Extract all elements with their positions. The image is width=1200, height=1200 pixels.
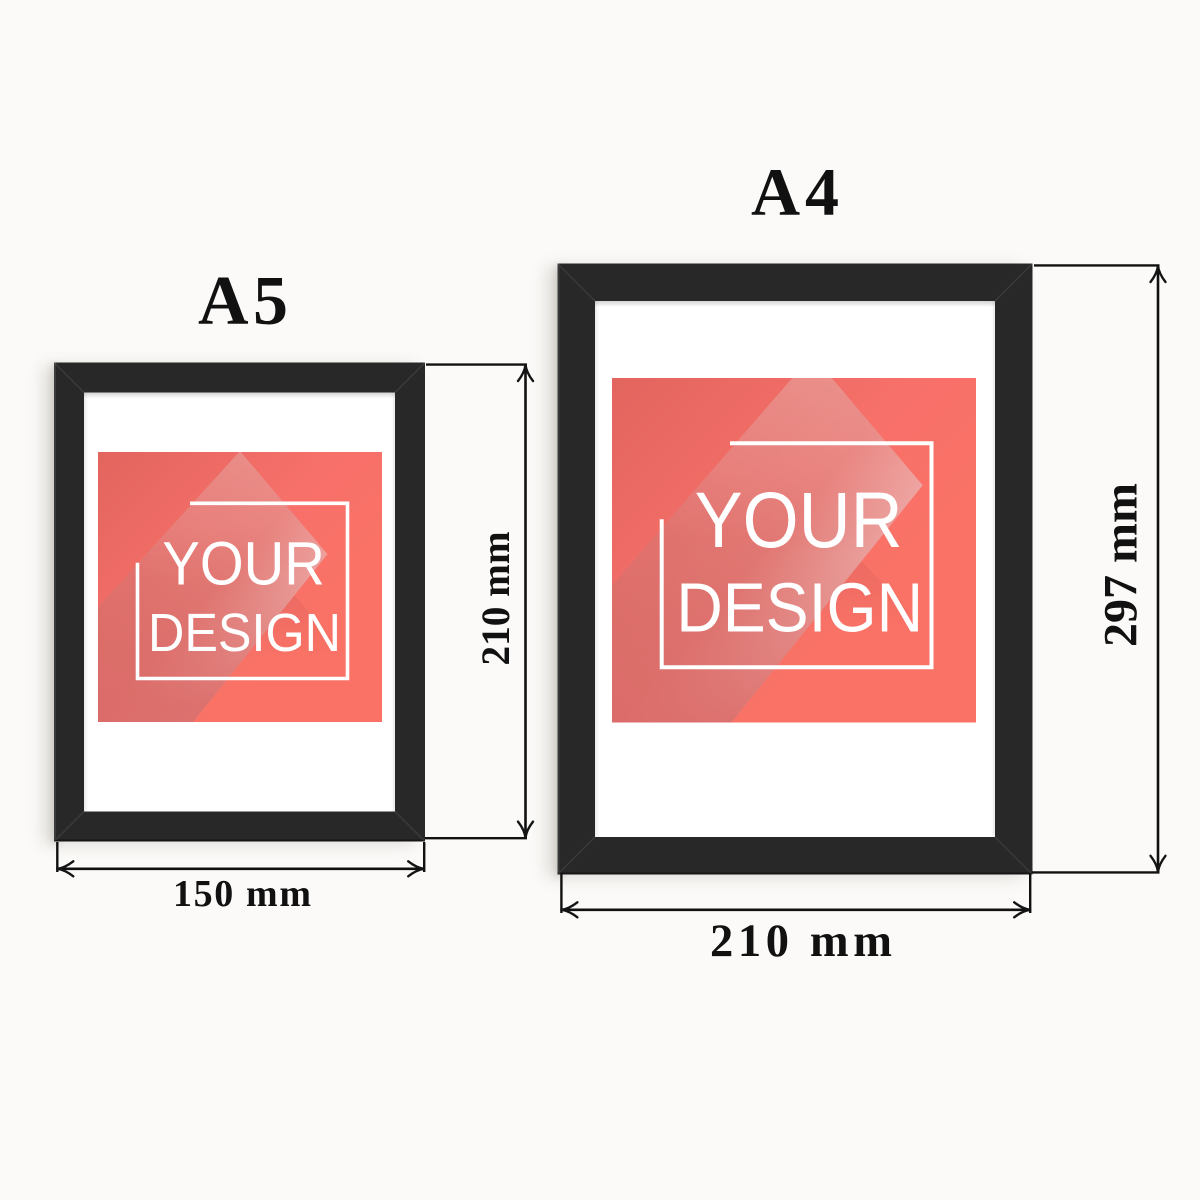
svg-text:150 mm: 150 mm	[173, 873, 311, 915]
svg-text:297 mm: 297 mm	[1095, 483, 1148, 647]
svg-text:210 mm: 210 mm	[474, 532, 518, 666]
svg-text:DESIGN: DESIGN	[148, 603, 341, 663]
svg-text:A5: A5	[198, 263, 288, 340]
svg-text:YOUR: YOUR	[695, 476, 903, 564]
svg-text:DESIGN: DESIGN	[676, 569, 923, 647]
svg-text:210 mm: 210 mm	[710, 916, 892, 967]
svg-text:YOUR: YOUR	[162, 530, 325, 599]
svg-text:A4: A4	[751, 154, 839, 230]
